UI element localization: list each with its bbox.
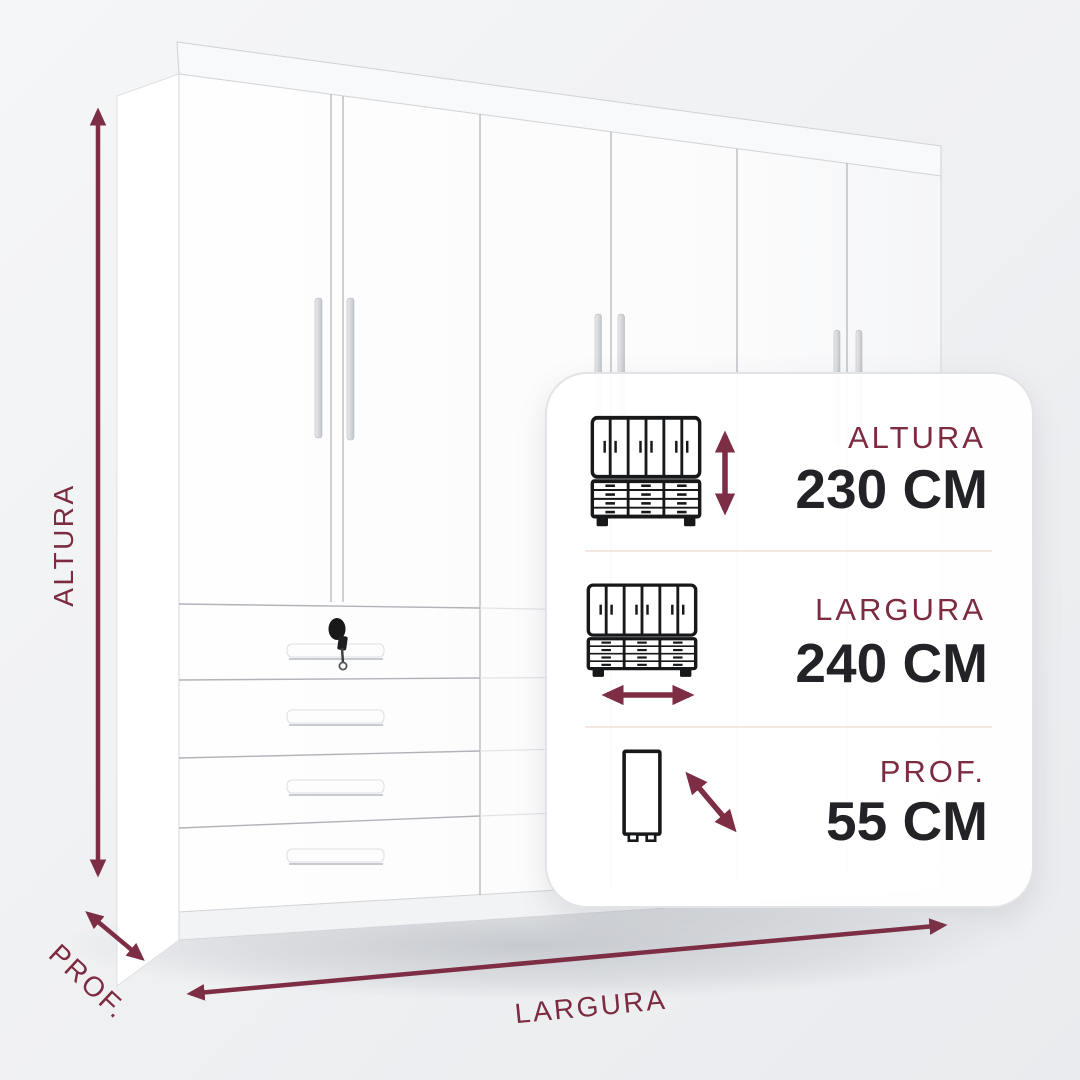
- prof-value: 55 CM: [826, 794, 988, 849]
- height-axis-label: ALTURA: [46, 445, 82, 645]
- wardrobe-front-height-icon: [589, 414, 703, 530]
- vertical-double-arrow-icon: [707, 414, 743, 532]
- card-separator: [585, 550, 992, 552]
- largura-label: LARGURA: [815, 594, 986, 625]
- wardrobe-side-panel: [117, 74, 179, 986]
- altura-value: 230 CM: [795, 462, 988, 517]
- altura-label: ALTURA: [848, 422, 986, 453]
- prof-label: PROF.: [880, 756, 986, 787]
- horizontal-double-arrow-icon: [583, 680, 713, 710]
- page-background: { "scene": { "altura_axis_label": "ALTUR…: [0, 0, 1080, 1080]
- largura-value: 240 CM: [795, 636, 988, 691]
- wardrobe-front-width-icon: [585, 582, 699, 680]
- dimensions-card: ALTURA 230 CM LARGURA 240 CM PROF. 55 CM: [545, 372, 1034, 908]
- card-separator: [585, 726, 992, 728]
- diagonal-double-arrow-icon: [661, 754, 761, 858]
- wardrobe-side-depth-icon: [619, 748, 665, 844]
